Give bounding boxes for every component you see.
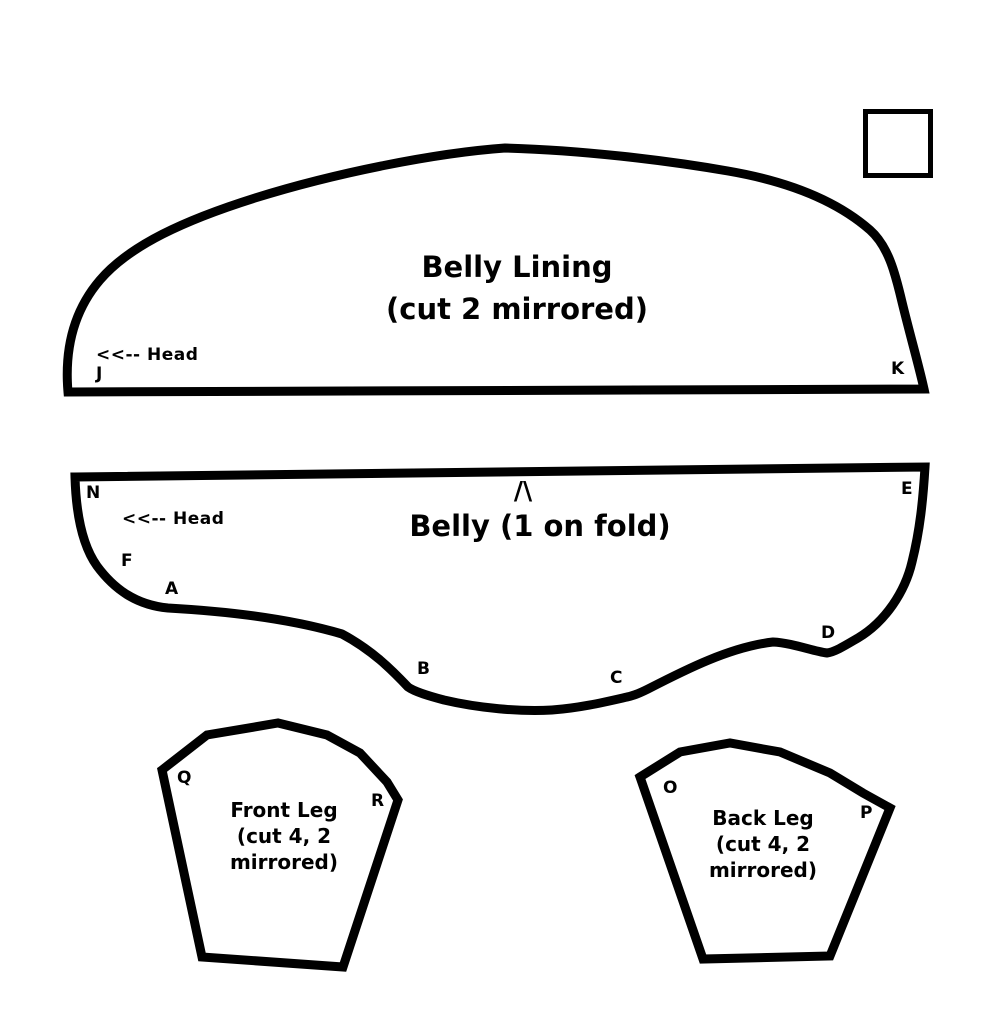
point-label-d: D [821, 625, 835, 642]
fold-mark: /\ [473, 478, 573, 504]
belly-lining-head-note: <<-- Head [96, 346, 198, 364]
back-leg-title: Back Leg [663, 805, 863, 831]
point-label-r: R [371, 793, 384, 810]
belly-head-note: <<-- Head [122, 510, 224, 528]
front-leg-title: Front Leg [184, 797, 384, 823]
point-label-j: J [96, 366, 102, 383]
front-leg-subtitle-2: mirrored) [184, 849, 384, 875]
belly-title: Belly (1 on fold) [340, 508, 740, 544]
point-label-e: E [901, 481, 913, 498]
front-leg-title-block: Front Leg (cut 4, 2 mirrored) [184, 797, 384, 875]
point-label-k: K [891, 361, 904, 378]
point-label-b: B [417, 661, 430, 678]
point-label-c: C [610, 670, 622, 687]
back-leg-subtitle-2: mirrored) [663, 857, 863, 883]
back-leg-title-block: Back Leg (cut 4, 2 mirrored) [663, 805, 863, 883]
point-label-o: O [663, 780, 677, 797]
point-label-p: P [860, 805, 872, 822]
point-label-f: F [121, 553, 133, 570]
scale-test-square [866, 112, 931, 176]
belly-title-block: Belly (1 on fold) [340, 508, 740, 544]
point-label-q: Q [177, 770, 191, 787]
belly-lining-title: Belly Lining [317, 246, 717, 288]
sewing-pattern-sheet: Belly Lining (cut 2 mirrored) <<-- Head … [0, 0, 997, 1024]
back-leg-subtitle-1: (cut 4, 2 [663, 831, 863, 857]
front-leg-subtitle-1: (cut 4, 2 [184, 823, 384, 849]
belly-lining-subtitle: (cut 2 mirrored) [317, 288, 717, 330]
point-label-n: N [86, 485, 100, 502]
point-label-a: A [165, 581, 178, 598]
belly-lining-title-block: Belly Lining (cut 2 mirrored) [317, 246, 717, 330]
